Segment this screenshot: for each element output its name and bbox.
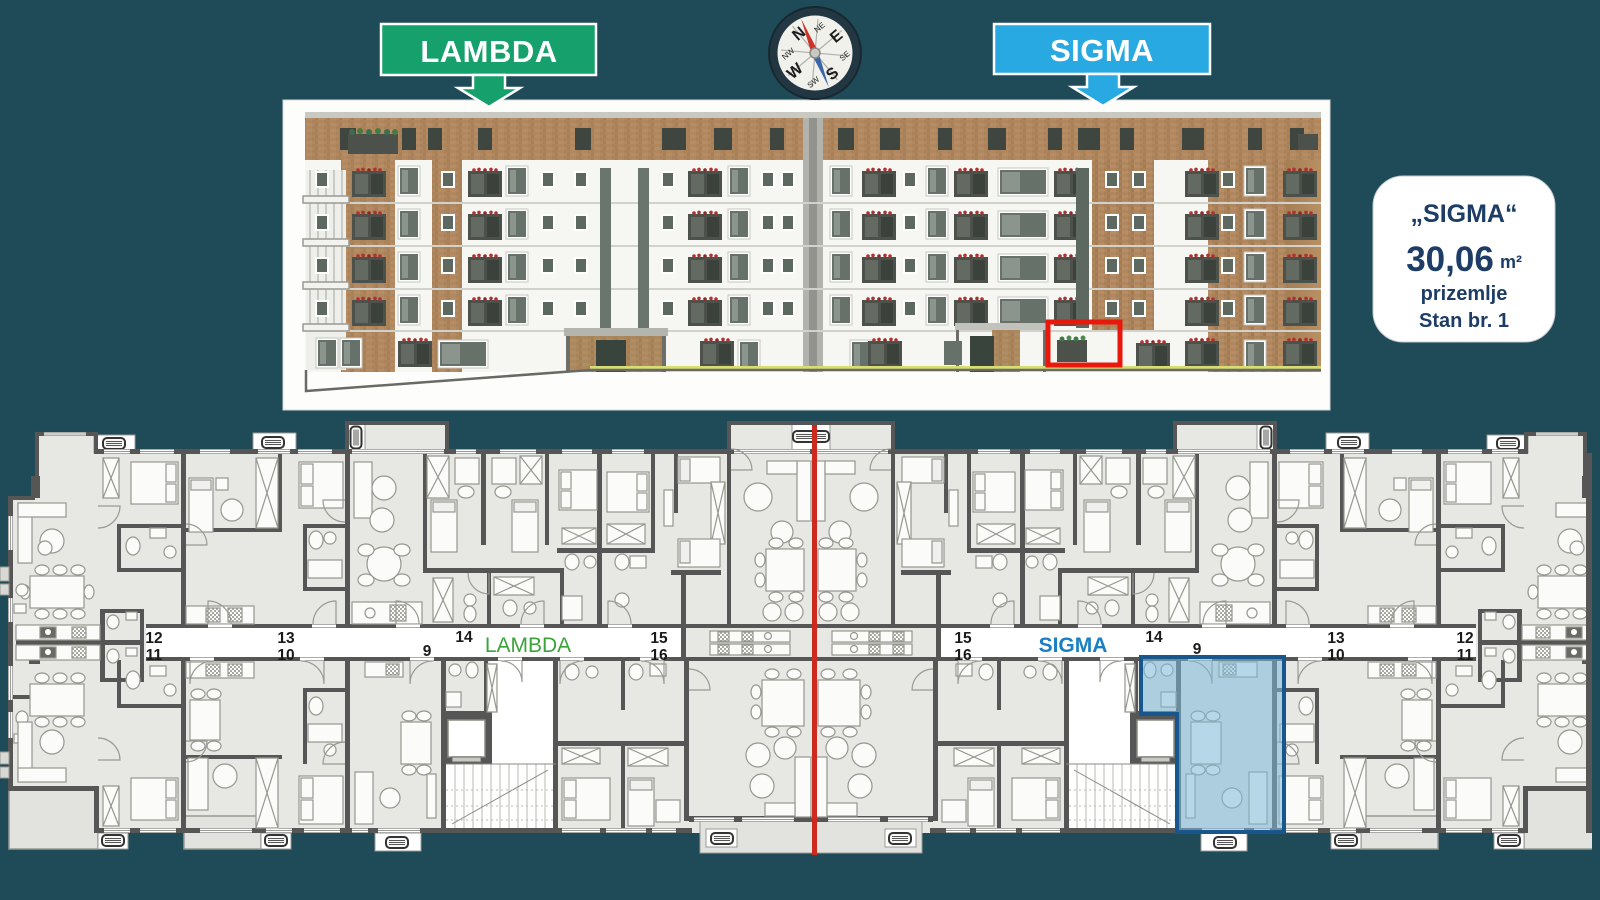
svg-text:14: 14 <box>455 629 473 646</box>
svg-text:15: 15 <box>954 630 972 647</box>
svg-text:14: 14 <box>1145 629 1163 646</box>
svg-text:15: 15 <box>650 630 668 647</box>
svg-text:10: 10 <box>277 647 294 664</box>
svg-text:prizemlje: prizemlje <box>1421 283 1508 305</box>
svg-text:13: 13 <box>277 630 295 647</box>
svg-text:16: 16 <box>954 647 972 664</box>
svg-text:„SIGMA“: „SIGMA“ <box>1411 200 1518 228</box>
svg-text:12: 12 <box>1456 630 1473 647</box>
svg-text:11: 11 <box>146 647 163 664</box>
svg-text:16: 16 <box>650 647 668 664</box>
svg-text:9: 9 <box>423 643 432 660</box>
svg-text:LAMBDA: LAMBDA <box>485 634 571 657</box>
svg-text:30,06: 30,06 <box>1406 240 1494 279</box>
svg-text:10: 10 <box>1327 647 1344 664</box>
svg-text:11: 11 <box>1457 647 1474 664</box>
svg-text:LAMBDA: LAMBDA <box>420 34 557 69</box>
svg-text:m²: m² <box>1500 252 1522 272</box>
svg-text:12: 12 <box>145 630 162 647</box>
svg-text:13: 13 <box>1327 630 1345 647</box>
svg-text:SIGMA: SIGMA <box>1050 33 1154 68</box>
svg-text:Stan br. 1: Stan br. 1 <box>1419 310 1509 332</box>
svg-text:SIGMA: SIGMA <box>1039 634 1108 657</box>
